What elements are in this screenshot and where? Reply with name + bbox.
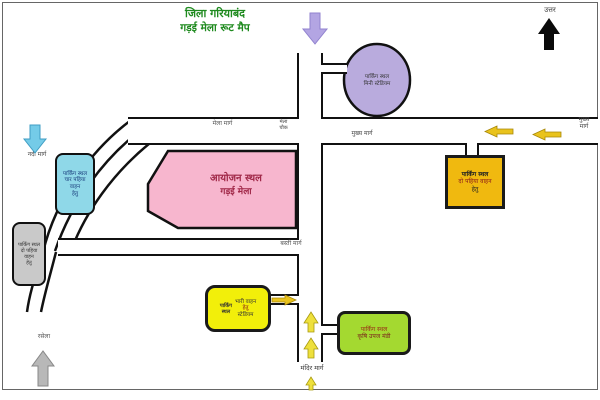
map-title-line2: गड़ई मेला रूट मैप [140,21,290,35]
compass-label: उत्तर [535,6,565,14]
river-side-label: नदी मार्ग [16,152,58,159]
junction-label-line2: चौक [272,126,295,132]
left-parking-line4: हेतु [26,260,32,266]
four-wheeler-line3: वाहन [70,184,80,191]
heavy-parking-side1: पार्किंग [220,303,232,309]
stadium-parking-line1: पार्किंग स्थल [365,74,389,81]
heavy-parking-side2: स्थल [220,309,232,315]
junction-patch [321,326,323,333]
two-wheeler-parking-left-box: पार्किंग स्थल दो पहिया वाहन हेतु [12,222,46,286]
stadium-access-road [321,63,347,74]
four-wheeler-line4: हेतु [72,191,78,198]
junction-patch [467,143,477,145]
heavy-parking-access-road [268,294,299,305]
route-map: जिला गरियाबंद गड़ई मेला रूट मैप उत्तर आय… [0,0,600,400]
stadium-parking-line2: मिनी स्टेडियम [364,81,391,88]
lower-road [58,238,299,256]
mid-road-label: मुख्य मार्ग [338,131,386,138]
rasela-label: रसेला [27,334,61,341]
map-title: जिला गरियाबंद गड़ई मेला रूट मैप [140,6,290,35]
junction-patch [321,65,323,72]
north-road [297,53,323,119]
venue-label-line2: गड़ई मेला [170,184,302,197]
curved-roads [27,118,150,312]
heavy-parking-line2: हेतु [235,305,256,312]
heavy-parking-line3: स्टेडियम [235,312,256,319]
four-wheeler-parking-box: पार्किंग स्थल चार पहिया वाहन हेतु [55,153,95,215]
venue-label-line1: आयोजन स्थल [170,170,302,184]
junction-patch [297,119,323,143]
lower-road-label: बस्ती मार्ग [266,241,316,248]
mandi-parking-box: पार्किंग स्थल कृषि उपज मंडी [337,311,411,355]
mandi-parking-line1: पार्किंग स्थल [361,326,388,333]
junction-patch [297,296,299,303]
junction-label: मेला चौक [272,120,295,132]
mandi-parking-line2: कृषि उपज मंडी [358,333,391,340]
stadium-parking-label: पार्किंग स्थल मिनी स्टेडियम [348,62,406,100]
right-edge-label-line2: मार्ग [572,124,596,131]
four-wheeler-line2: चार पहिया [65,177,86,184]
two-wheeler-parking-right-box: पार्किंग स्थल दो पहिया वाहन हेतु [445,155,505,209]
map-title-line1: जिला गरियाबंद [140,6,290,21]
right-parking-line2: दो पहिया वाहन [458,178,491,185]
heavy-parking-main-label: भारी वाहन हेतु स्टेडियम [235,299,256,319]
temple-road-label: मंदिर मार्ग [286,365,338,372]
right-parking-line3: हेतु [472,186,479,193]
heavy-parking-side-label: पार्किंग स्थल [220,303,232,315]
heavy-vehicle-parking-box: पार्किंग स्थल भारी वाहन हेतु स्टेडियम [205,285,271,332]
venue-label: आयोजन स्थल गड़ई मेला [170,170,302,197]
left-road-label: मेला मार्ग [195,121,250,128]
right-edge-road-label: मुख्य मार्ग [572,117,596,131]
